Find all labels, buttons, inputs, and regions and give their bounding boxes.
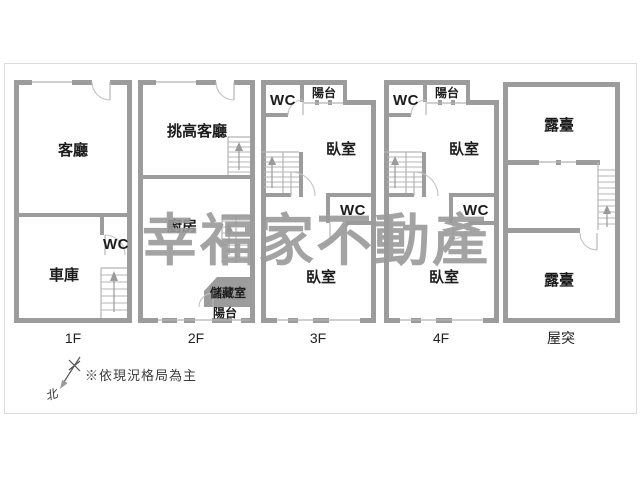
north-label: 北: [43, 386, 61, 404]
door-arc: [580, 233, 597, 250]
floor-label-roof: 屋突: [547, 330, 575, 346]
floor-label-4f: 4F: [433, 330, 449, 346]
note-text: ※依現況格局為主: [85, 368, 197, 383]
room-label-tall-living: 挑高客廳: [167, 122, 227, 140]
floor-label-3f: 3F: [310, 330, 326, 346]
room-label-living: 客廳: [57, 141, 88, 159]
room-label-balcony: 陽台: [312, 85, 336, 100]
door-arc: [199, 82, 234, 307]
floorplan-page: 客廳 WC 車庫 1F: [0, 0, 640, 480]
room-label-terrace-top: 露臺: [544, 116, 574, 134]
room-label-garage: 車庫: [49, 266, 79, 284]
stairs: [598, 162, 615, 230]
room-label-storage: 儲藏室: [210, 285, 246, 300]
door-arc: [92, 82, 125, 255]
room-label-bedroom-top: 臥室: [449, 140, 479, 158]
room-label-balcony: 陽台: [213, 305, 237, 320]
room-label-wc-top: WC: [270, 92, 296, 109]
floor-label-2f: 2F: [188, 330, 204, 346]
floorplan-roof: 露臺 露臺 屋突: [503, 82, 620, 346]
room-label-balcony: 陽台: [435, 85, 459, 100]
agency-watermark: 幸福家不動產: [142, 209, 490, 272]
room-label-wc: WC: [103, 236, 129, 253]
stairs: [101, 268, 127, 318]
floorplan-canvas: 客廳 WC 車庫 1F: [0, 0, 640, 480]
room-label-bedroom-top: 臥室: [326, 140, 356, 158]
room-label-wc-top: WC: [393, 92, 419, 109]
floor-label-1f: 1F: [65, 330, 81, 346]
room-label-terrace-bottom: 露臺: [544, 271, 574, 289]
stairs: [261, 152, 299, 193]
floorplan-1f: 客廳 WC 車庫 1F: [14, 80, 132, 346]
compass-north-icon: 北: [43, 357, 80, 404]
stairs: [384, 152, 422, 193]
